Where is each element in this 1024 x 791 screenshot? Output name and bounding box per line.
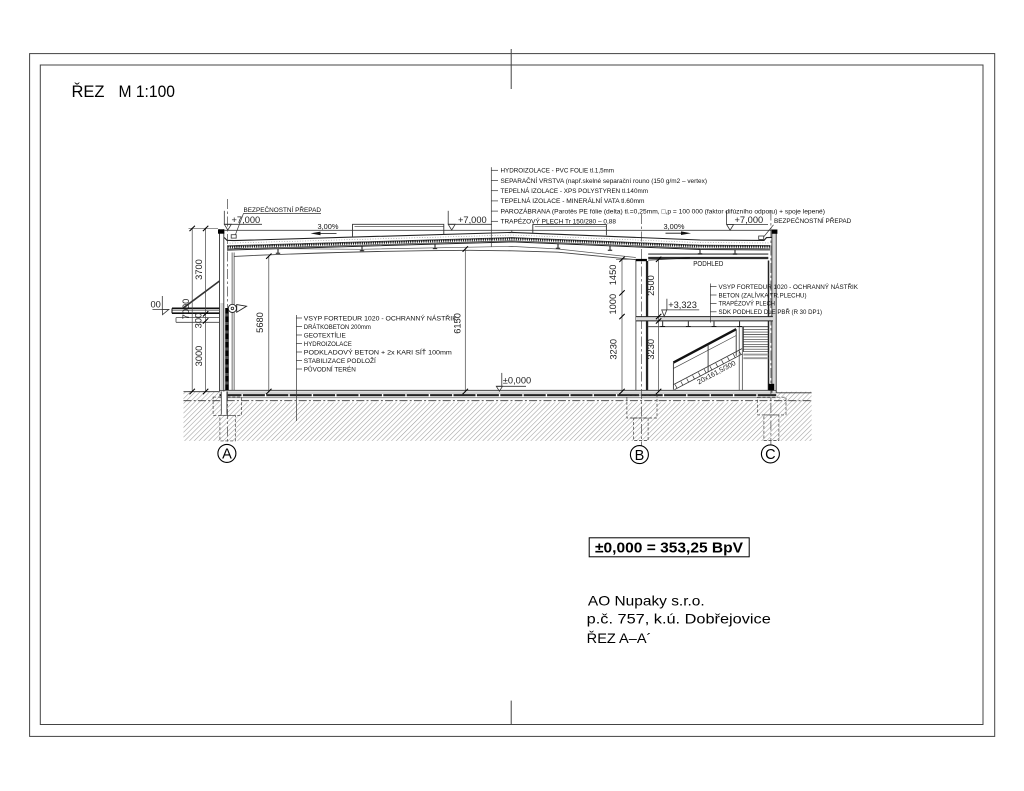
svg-text:2500: 2500	[646, 275, 656, 296]
svg-text:HYDROIZOLACE: HYDROIZOLACE	[304, 341, 353, 348]
svg-text:SDK PODHLED DLE PBŘ (R 30 DP1): SDK PODHLED DLE PBŘ (R 30 DP1)	[719, 307, 823, 316]
svg-text:1450: 1450	[608, 265, 618, 286]
svg-text:±0,000 = 353,25 BpV: ±0,000 = 353,25 BpV	[595, 540, 743, 556]
svg-text:7000: 7000	[181, 299, 191, 320]
svg-text:STABILIZACE PODLOŽÍ: STABILIZACE PODLOŽÍ	[304, 356, 376, 365]
svg-text:BEZPEČNOSTNÍ PŘEPAD: BEZPEČNOSTNÍ PŘEPAD	[774, 216, 851, 225]
svg-text:300: 300	[194, 313, 204, 329]
svg-text:M 1:100: M 1:100	[119, 83, 176, 101]
svg-text:TRAPÉZOVÝ PLECH: TRAPÉZOVÝ PLECH	[719, 299, 776, 308]
svg-text:6150: 6150	[453, 313, 463, 334]
svg-text:±0,000: ±0,000	[503, 375, 531, 385]
svg-text:SEPARAČNÍ VRSTVA (např.skelné: SEPARAČNÍ VRSTVA (např.skelné separační …	[501, 176, 708, 185]
svg-text:+7,000: +7,000	[232, 215, 261, 225]
svg-text:+3,323: +3,323	[668, 300, 697, 310]
svg-text:VSYP FORTEDUR 1020 - OCHRANNÝ: VSYP FORTEDUR 1020 - OCHRANNÝ NÁSTŘIK	[719, 282, 859, 291]
svg-text:BETON (ZALÍVKA TR.PLECHU): BETON (ZALÍVKA TR.PLECHU)	[719, 290, 807, 299]
svg-text:ŘEZ A–A´: ŘEZ A–A´	[587, 630, 652, 646]
svg-text:TEPELNÁ IZOLACE - MINERÁLNÍ VA: TEPELNÁ IZOLACE - MINERÁLNÍ VATA tl.60mm	[501, 196, 646, 205]
svg-text:3230: 3230	[608, 339, 618, 360]
svg-text:HYDROIZOLACE - PVC FOLIE tl.1,: HYDROIZOLACE - PVC FOLIE tl.1,5mm	[501, 168, 615, 175]
svg-text:DRÁTKOBETON 200mm: DRÁTKOBETON 200mm	[304, 322, 371, 331]
svg-text:00: 00	[150, 299, 160, 309]
svg-text:TRAPÉZOVÝ PLECH Tr 150/280 – 0: TRAPÉZOVÝ PLECH Tr 150/280 – 0,88	[501, 217, 617, 226]
svg-text:VSYP FORTEDUR 1020 - OCHRANNÝ: VSYP FORTEDUR 1020 - OCHRANNÝ NÁSTŘIK	[304, 313, 458, 322]
svg-text:AO Nupaky s.r.o.: AO Nupaky s.r.o.	[588, 593, 705, 609]
svg-text:1000: 1000	[608, 294, 618, 315]
svg-text:3,00%: 3,00%	[318, 222, 340, 231]
svg-text:+7,000: +7,000	[735, 215, 764, 225]
svg-text:PAROZÁBRANA (Parotěs PE fólie: PAROZÁBRANA (Parotěs PE fólie (delta) tl…	[501, 206, 826, 215]
svg-text:3,00%: 3,00%	[664, 222, 686, 231]
svg-text:ŘEZ: ŘEZ	[72, 82, 105, 101]
svg-text:BEZPEČNOSTNÍ PŘEPAD: BEZPEČNOSTNÍ PŘEPAD	[244, 205, 322, 214]
svg-text:GEOTEXTÍLIE: GEOTEXTÍLIE	[304, 330, 347, 339]
svg-text:5680: 5680	[255, 312, 265, 333]
svg-text:+7,000: +7,000	[458, 215, 487, 225]
svg-text:3700: 3700	[194, 259, 204, 280]
svg-text:A: A	[222, 447, 232, 463]
svg-text:3230: 3230	[646, 339, 656, 360]
svg-text:p.č. 757, k.ú. Dobřejovice: p.č. 757, k.ú. Dobřejovice	[587, 611, 771, 627]
svg-text:PODKLADOVÝ BETON + 2x KARI SÍŤ: PODKLADOVÝ BETON + 2x KARI SÍŤ 100mm	[304, 347, 453, 356]
svg-text:TEPELNÁ IZOLACE - XPS POLYSTYR: TEPELNÁ IZOLACE - XPS POLYSTYREN tl.140m…	[501, 186, 649, 195]
svg-text:3000: 3000	[194, 346, 204, 367]
svg-text:C: C	[765, 447, 775, 463]
svg-text:PŮVODNÍ TERÉN: PŮVODNÍ TERÉN	[304, 364, 356, 373]
svg-text:PODHLED: PODHLED	[693, 261, 723, 268]
svg-text:B: B	[635, 448, 645, 464]
